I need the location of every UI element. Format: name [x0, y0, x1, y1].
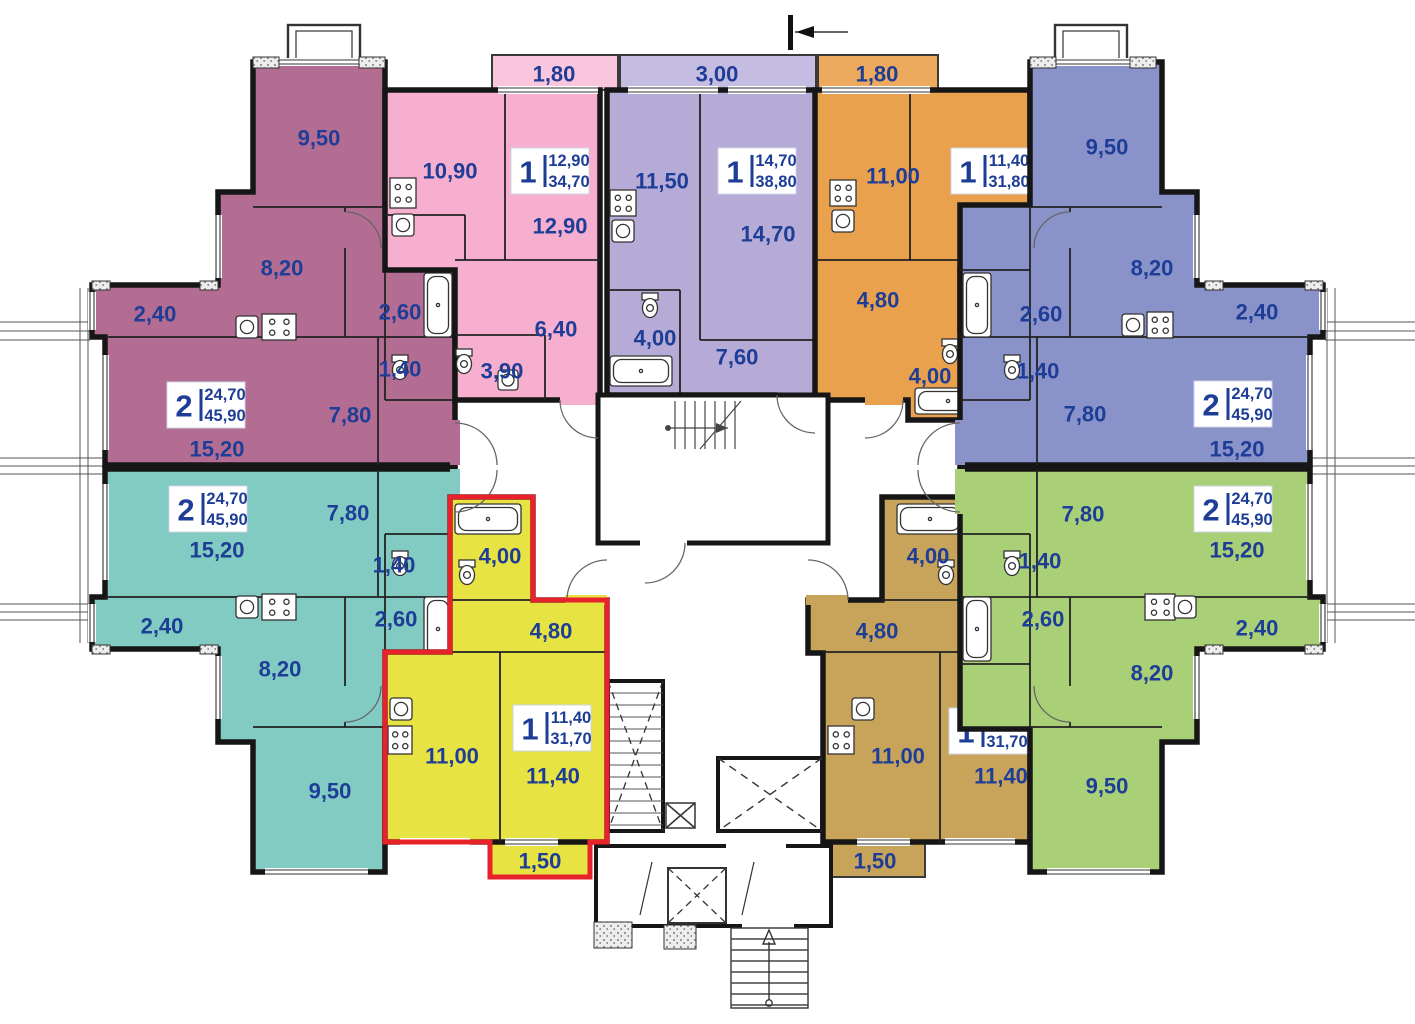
- door-opening: [450, 420, 460, 465]
- stove-icon: [1145, 594, 1175, 620]
- door-opening: [1065, 212, 1075, 248]
- apartment-info-box: 224,7045,90: [167, 382, 246, 428]
- room-area-label: 8,20: [259, 657, 302, 682]
- apartment-info-box: 224,7045,90: [1194, 486, 1273, 532]
- door-opening: [560, 395, 598, 405]
- sink-icon: [852, 698, 874, 720]
- room-area-label: 11,00: [871, 744, 925, 769]
- bathtub-icon: [897, 504, 963, 534]
- living-area: 24,70: [204, 386, 245, 404]
- total-area: 45,90: [1231, 511, 1272, 529]
- concrete-pier: [664, 925, 696, 949]
- concrete-pier: [200, 645, 218, 654]
- toilet-icon: [459, 560, 475, 585]
- balcony-area-label: 1,80: [856, 62, 899, 87]
- door-opening: [806, 595, 848, 605]
- room-area-label: 11,00: [425, 744, 479, 769]
- room-area-label: 9,50: [1086, 774, 1129, 799]
- room-area-label: 8,20: [1131, 256, 1174, 281]
- door-opening: [955, 420, 965, 465]
- stair-room: [598, 395, 828, 543]
- rooms-count: 1: [521, 712, 538, 747]
- stove-icon: [828, 726, 854, 754]
- room-area-label: 1,40: [373, 553, 416, 578]
- room-area-label: 7,80: [1064, 402, 1107, 427]
- room-area-label: 6,40: [535, 317, 578, 342]
- stove-icon: [262, 594, 296, 620]
- room-area-label: 1,40: [1017, 359, 1060, 384]
- living-area: 24,70: [206, 490, 247, 508]
- room-area-label: 14,70: [740, 222, 795, 247]
- room-area-label: 2,60: [1020, 302, 1063, 327]
- concrete-pier: [92, 645, 110, 654]
- rooms-count: 2: [1202, 388, 1219, 423]
- bathtub-icon: [610, 356, 672, 386]
- living-area: 11,40: [989, 152, 1029, 170]
- living-area: 24,70: [1231, 490, 1272, 508]
- sink-icon: [392, 214, 414, 236]
- rooms-count: 1: [519, 155, 536, 190]
- room-area-label: 1,40: [379, 357, 422, 382]
- door-opening: [340, 212, 350, 248]
- concrete-pier: [1305, 281, 1323, 290]
- room-area-label: 4,00: [907, 544, 950, 569]
- room-area-label: 2,40: [141, 614, 184, 639]
- room-area-label: 4,80: [530, 619, 573, 644]
- room-area-label: 2,60: [379, 300, 422, 325]
- total-area: 34,70: [548, 173, 589, 191]
- sink-icon: [1122, 314, 1144, 336]
- room-area-label: 2,60: [1022, 607, 1065, 632]
- concrete-pier: [92, 281, 110, 290]
- rooms-count: 2: [177, 493, 194, 528]
- room-area-label: 7,80: [1062, 502, 1105, 527]
- apartment-info-box: 111,4031,80: [951, 148, 1030, 194]
- stove-icon: [830, 180, 856, 206]
- concrete-pier: [1205, 645, 1223, 654]
- room-area-label: 3,90: [481, 359, 524, 384]
- stove-icon: [388, 726, 412, 754]
- balcony-area-label: 1,50: [854, 849, 897, 874]
- shaft-duct: [666, 803, 695, 828]
- door-opening: [865, 395, 903, 405]
- apartment-info-box: 111,4031,70: [513, 705, 592, 751]
- total-area: 45,90: [206, 511, 247, 529]
- balcony-area-label: 1,50: [519, 849, 562, 874]
- door-opening: [340, 686, 350, 722]
- door-opening: [1065, 686, 1075, 722]
- room-area-label: 7,60: [716, 345, 759, 370]
- room-area-label: 2,40: [1236, 300, 1279, 325]
- living-area: 14,70: [755, 152, 796, 170]
- concrete-pier: [1205, 281, 1223, 290]
- sink-icon: [832, 210, 854, 232]
- room-area-label: 11,00: [866, 164, 920, 189]
- apartment-info-box: 114,7038,80: [718, 148, 797, 194]
- stove-icon: [262, 314, 296, 340]
- room-area-label: 7,80: [327, 501, 370, 526]
- rooms-count: 1: [726, 155, 743, 190]
- room-area-label: 8,20: [261, 256, 304, 281]
- bathtub-icon: [455, 504, 521, 534]
- sink-icon: [236, 316, 258, 338]
- room-area-label: 1,40: [1019, 549, 1062, 574]
- room-area-label: 7,80: [329, 403, 372, 428]
- apartment-info-box: 112,9034,70: [511, 148, 590, 194]
- apartment-lavender[interactable]: 11,5014,704,007,603,00114,7038,80: [607, 55, 820, 400]
- toilet-icon: [456, 349, 472, 374]
- total-area: 45,90: [1231, 406, 1272, 424]
- stove-icon: [390, 178, 416, 208]
- balcony-area-label: 1,80: [533, 62, 576, 87]
- room-area-label: 15,20: [1209, 538, 1264, 563]
- floor-plan-drawing: 9,508,202,4015,207,802,601,40224,7045,90…: [0, 0, 1415, 1024]
- door-opening: [955, 469, 965, 514]
- apartment-info-box: 224,7045,90: [1194, 381, 1273, 427]
- balcony-area-label: 3,00: [696, 62, 739, 87]
- bathtub-icon: [424, 273, 452, 337]
- room-area-label: 12,90: [532, 214, 587, 239]
- stove-icon: [1147, 312, 1173, 338]
- apartment-info-box: 224,7045,90: [169, 486, 248, 532]
- window-icon: [498, 86, 598, 94]
- room-area-label: 11,50: [635, 169, 689, 194]
- room-area-label: 10,90: [422, 159, 477, 184]
- living-area: 12,90: [548, 152, 589, 170]
- room-area-label: 2,60: [375, 607, 418, 632]
- elevator-icon: [718, 758, 822, 831]
- sink-icon: [390, 698, 412, 720]
- rooms-count: 2: [175, 389, 192, 424]
- room-area-label: 15,20: [1209, 437, 1264, 462]
- total-area: 31,80: [988, 173, 1029, 191]
- room-area-label: 4,80: [857, 288, 900, 313]
- stove-icon: [610, 190, 636, 216]
- room-area-label: 4,00: [479, 544, 522, 569]
- concrete-pier: [594, 922, 632, 948]
- room-area-label: 15,20: [189, 538, 244, 563]
- sink-icon: [612, 220, 634, 242]
- total-area: 31,70: [550, 730, 591, 748]
- sink-icon: [236, 596, 258, 618]
- room-area-label: 2,40: [134, 302, 177, 327]
- room-area-label: 4,80: [856, 619, 899, 644]
- concrete-pier: [1305, 645, 1323, 654]
- total-area: 31,70: [986, 733, 1027, 751]
- concrete-pier: [200, 281, 218, 290]
- room-area-label: 2,40: [1236, 616, 1279, 641]
- floor-plan: 9,508,202,4015,207,802,601,40224,7045,90…: [0, 0, 1415, 1024]
- room-area-label: 9,50: [1086, 135, 1129, 160]
- total-area: 38,80: [755, 173, 796, 191]
- sink-icon: [1174, 596, 1196, 618]
- living-area: 24,70: [1231, 385, 1272, 403]
- concrete-pier: [359, 57, 385, 68]
- bathtub-icon: [963, 597, 991, 661]
- room-area-label: 9,50: [298, 126, 341, 151]
- window-icon: [822, 86, 930, 94]
- room-area-label: 9,50: [309, 779, 352, 804]
- concrete-pier: [1030, 57, 1056, 68]
- toilet-icon: [942, 339, 958, 364]
- total-area: 45,90: [204, 407, 245, 425]
- room-area-label: 15,20: [189, 437, 244, 462]
- toilet-icon: [642, 293, 658, 318]
- room-area-label: 4,00: [634, 326, 677, 351]
- concrete-pier: [253, 57, 279, 68]
- room-area-label: 11,40: [974, 764, 1028, 789]
- living-area: 11,40: [551, 709, 591, 727]
- room-area-label: 4,00: [909, 364, 952, 389]
- window-icon: [628, 86, 806, 94]
- bathtub-icon: [963, 273, 991, 337]
- rooms-count: 2: [1202, 493, 1219, 528]
- room-area-label: 8,20: [1131, 661, 1174, 686]
- concrete-pier: [1130, 57, 1156, 68]
- room-area-label: 11,40: [526, 764, 580, 789]
- rooms-count: 1: [959, 155, 976, 190]
